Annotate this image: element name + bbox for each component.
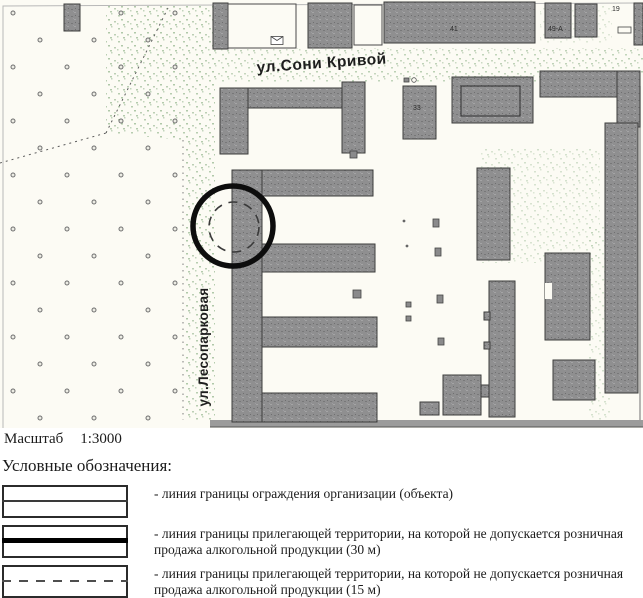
- small-structure-icon: [271, 37, 283, 45]
- bench-icon: [618, 27, 631, 33]
- building: [64, 4, 80, 31]
- building-with-courtyard: [452, 77, 533, 123]
- legend-item-15m-boundary: - линия границы прилегающей территории, …: [2, 565, 643, 598]
- building: [403, 86, 436, 139]
- legend-item-text: - линия границы прилегающей территории, …: [154, 525, 638, 557]
- scale-value: 1:3000: [80, 431, 122, 447]
- site-map: ул.Сони Кривой ул.Лесопарковая 41 49-А 1…: [0, 0, 643, 428]
- building: [420, 402, 439, 415]
- legend-swatch-thin-solid-line: [2, 485, 128, 518]
- legend-item-text: - линия границы прилегающей территории, …: [154, 565, 638, 597]
- building: [477, 168, 510, 260]
- building-outlined: [228, 4, 296, 48]
- building: [634, 3, 643, 45]
- map-scale: Масштаб1:3000: [4, 431, 643, 448]
- legend: - линия границы ограждения организации (…: [2, 485, 643, 598]
- legend-title: Условные обозначения:: [2, 456, 643, 476]
- thick-solid-line-sample: [2, 538, 128, 543]
- park-area: [4, 4, 185, 421]
- scale-label: Масштаб: [4, 431, 63, 447]
- document-page: ул.Сони Кривой ул.Лесопарковая 41 49-А 1…: [0, 0, 643, 598]
- building: [553, 360, 595, 400]
- building-number: 19: [612, 6, 620, 13]
- building-number: 41: [450, 26, 458, 33]
- building-outlined: [354, 5, 382, 45]
- street-label-lesoparkovaya: ул.Лесопарковая: [196, 288, 211, 407]
- building: [617, 71, 640, 127]
- legend-swatch-thick-solid-line: [2, 525, 128, 558]
- site-map-canvas: ул.Сони Кривой ул.Лесопарковая 41 49-А 1…: [0, 0, 643, 428]
- building: [308, 3, 352, 48]
- building: [575, 4, 597, 37]
- building-long-east: [605, 123, 638, 393]
- legend-item-30m-boundary: - линия границы прилегающей территории, …: [2, 525, 643, 558]
- building-number: 33: [413, 105, 421, 112]
- thin-solid-line-sample: [2, 500, 128, 502]
- dashed-line-sample: [2, 580, 128, 582]
- building: [384, 2, 535, 43]
- legend-swatch-dashed-line: [2, 565, 128, 598]
- legend-item-fence-boundary: - линия границы ограждения организации (…: [2, 485, 643, 518]
- building-number: 49-А: [548, 26, 563, 33]
- legend-item-text: - линия границы ограждения организации (…: [154, 485, 638, 502]
- building: [213, 3, 228, 49]
- building: [545, 253, 590, 340]
